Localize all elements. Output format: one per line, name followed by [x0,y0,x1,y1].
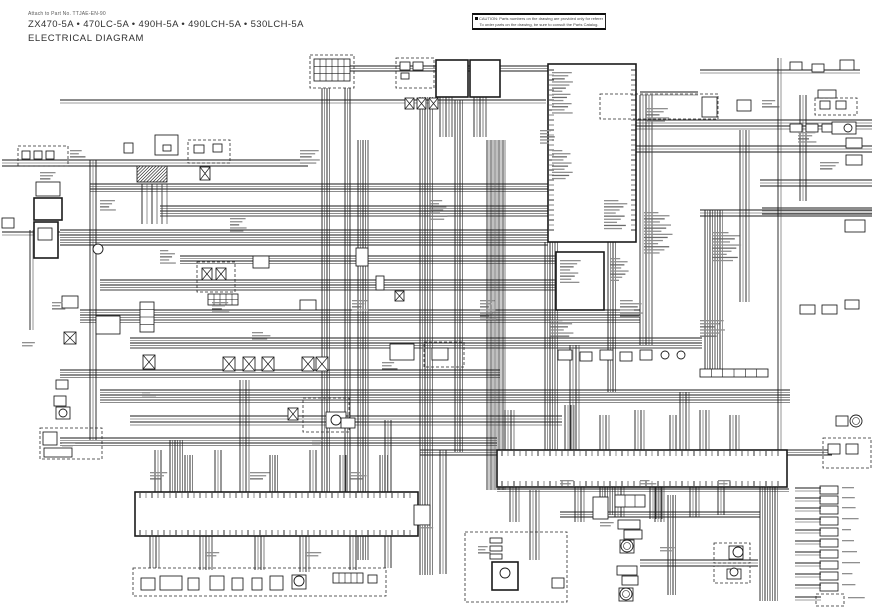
micro-label [478,546,488,547]
connector-grid [333,573,363,583]
micro-label [552,106,568,107]
micro-label [480,319,496,320]
micro-label [552,169,565,170]
micro-label [352,300,367,301]
micro-label [350,478,364,479]
micro-label [205,552,219,553]
micro-label [250,472,269,473]
micro-label [610,264,624,265]
controller-block [135,492,418,536]
micro-label [382,362,394,363]
component-block [820,583,838,591]
micro-label [552,84,569,85]
micro-label [160,253,175,254]
micro-label [620,312,643,313]
component-block [820,101,830,109]
component-block [836,416,848,426]
micro-label [610,270,629,271]
component-blocks [2,55,871,606]
component-block [790,124,802,132]
component-block [2,218,14,228]
micro-label [550,326,568,327]
micro-label [712,235,740,236]
micro-label [712,244,741,245]
micro-label [660,547,675,548]
component-block [36,182,60,196]
component-block [38,228,52,240]
micro-label [22,345,33,346]
micro-label [552,153,570,154]
component-block [846,138,862,148]
micro-label [550,323,572,324]
micro-label [552,75,568,76]
micro-label [712,257,738,258]
component-block [300,300,316,310]
component-block [490,538,502,543]
micro-label [660,550,672,551]
controller-block [470,60,500,97]
electrical-diagram-canvas [0,0,874,615]
connector-circle [661,351,669,359]
micro-label [560,263,577,264]
micro-label [100,206,109,207]
micro-label [620,300,633,301]
component-block [401,73,409,79]
micro-label [644,237,668,238]
micro-label [205,555,216,556]
component-block [252,578,262,590]
micro-label [552,81,573,82]
micro-label [644,215,670,216]
micro-label [382,368,398,369]
micro-label [762,106,779,107]
micro-label [212,311,229,312]
component-block [822,305,837,314]
connector-circle [59,409,67,417]
micro-label [644,246,669,247]
micro-label [604,219,621,220]
micro-label [430,206,446,207]
micro-label [798,141,816,142]
micro-label [604,200,618,201]
micro-label [540,142,549,143]
micro-label [644,231,661,232]
micro-label [550,332,573,333]
micro-label [560,272,578,273]
component-block [820,561,838,569]
micro-label [610,274,625,275]
micro-label [252,338,267,339]
micro-label [100,200,115,201]
component-block [163,145,171,151]
micro-label [620,303,642,304]
micro-label [540,133,548,134]
micro-label [22,342,35,343]
micro-label [552,150,562,151]
micro-label [820,162,839,163]
micro-label [560,279,571,280]
component-block [413,62,423,70]
micro-label [212,305,225,306]
micro-label [610,258,620,259]
micro-label [848,597,865,598]
micro-label [540,130,551,131]
micro-label [62,442,75,443]
component-block [845,220,865,232]
micro-label [552,97,567,98]
micro-label [430,216,447,217]
component-block [490,554,502,559]
component-block [580,352,592,361]
micro-label [430,203,439,204]
micro-label [52,308,65,309]
micro-label [552,72,572,73]
micro-label [150,472,167,473]
component-block [124,143,133,153]
component-block [624,530,642,539]
micro-label [552,103,572,104]
component-block [820,517,838,525]
micro-label [820,168,832,169]
micro-label [700,332,721,333]
micro-label [160,250,168,251]
component-block [846,155,862,165]
micro-label [604,225,626,226]
component-block [253,256,269,268]
micro-label [798,138,809,139]
micro-label [762,103,772,104]
micro-label [644,249,664,250]
component-block [593,497,608,519]
micro-label [52,305,60,306]
micro-label [644,221,660,222]
component-block [640,350,652,360]
component-block [737,100,751,111]
micro-label [604,209,620,210]
micro-label [700,326,715,327]
micro-label [798,132,815,133]
component-block [806,124,818,132]
component-block [232,578,243,590]
micro-label [480,312,492,313]
controller-block [34,198,62,220]
micro-label [300,150,319,151]
connector-circle [850,415,862,427]
micro-label [142,395,156,396]
micro-label [160,262,176,263]
micro-label [842,487,854,488]
micro-label [382,365,392,366]
micro-label [718,480,730,481]
micro-label [560,276,575,277]
micro-label [142,392,150,393]
component-block [820,528,838,536]
micro-label [70,153,79,154]
micro-label [480,303,492,304]
component-block [840,60,854,70]
micro-label [552,94,570,95]
micro-label [620,309,634,310]
micro-label [712,248,736,249]
micro-label [646,117,669,118]
micro-label [305,555,318,556]
micro-label [62,445,73,446]
micro-label [600,522,614,523]
micro-label [712,238,735,239]
component-block [188,578,199,590]
micro-label [600,525,611,526]
micro-label [762,100,775,101]
micro-label [150,478,161,479]
micro-label [644,240,663,241]
micro-label [604,203,627,204]
micro-label [70,156,85,157]
micro-label [552,156,567,157]
micro-label [100,203,112,204]
component-block [622,576,638,585]
micro-label [604,212,616,213]
component-block [54,396,66,406]
micro-label [300,156,312,157]
micro-label [560,480,574,481]
connector-circle [621,540,633,552]
micro-label [646,111,664,112]
connector-circle [677,351,685,359]
micro-label [352,303,364,304]
component-block [96,316,120,334]
micro-label [644,234,673,235]
fuse-hatch-line [121,166,137,182]
connector-circle [500,568,510,578]
micro-label [552,162,572,163]
component-block [341,418,355,428]
micro-label [312,443,320,444]
micro-label [230,224,239,225]
micro-label [212,308,222,309]
micro-label [552,78,565,79]
component-block [56,380,68,389]
micro-label [40,172,56,173]
micro-label [252,335,270,336]
component-block [820,486,838,494]
component-block [141,578,155,590]
micro-label [620,306,638,307]
wire-bundles [2,58,872,601]
micro-label [552,112,573,113]
micro-label [350,472,360,473]
micro-label [646,120,665,121]
component-block [356,248,368,266]
micro-label [250,475,266,476]
micro-label [644,228,666,229]
micro-label [70,150,82,151]
component-block [552,578,564,588]
micro-label [604,228,622,229]
micro-label [842,573,852,574]
micro-label [305,552,321,553]
component-block [812,64,824,72]
micro-label [430,212,440,213]
micro-label [552,178,566,179]
micro-label [550,320,562,321]
micro-label [712,260,733,261]
micro-label [604,206,623,207]
micro-label [842,562,860,563]
component-block [558,350,572,360]
micro-label [842,507,856,508]
micro-label [646,114,660,115]
micro-label [552,175,569,176]
micro-label [820,165,836,166]
micro-label [250,478,263,479]
micro-label [150,475,164,476]
micro-label [700,329,725,330]
micro-label [552,100,563,101]
micro-label [552,166,568,167]
micro-label [712,241,730,242]
micro-label [230,218,246,219]
connector-grid [615,495,645,507]
component-block [213,144,222,152]
micro-label [312,440,322,441]
component-block [820,496,838,504]
micro-label [52,302,62,303]
component-block [22,151,30,159]
micro-label [640,483,656,484]
micro-label [300,159,320,160]
micro-label [610,277,622,278]
micro-label [430,209,443,210]
micro-label [718,483,728,484]
micro-label [352,309,368,310]
micro-label [480,316,490,317]
micro-label [300,153,315,154]
micro-label [644,243,658,244]
micro-label [842,540,854,541]
micro-label [700,336,717,337]
micro-label [230,230,243,231]
connector-circle [294,576,304,586]
component-block [828,444,840,454]
component-block [800,305,815,314]
component-block [414,505,430,525]
micro-label [842,518,859,519]
component-block [376,276,384,290]
micro-label [610,280,619,281]
component-block [790,62,802,70]
micro-label [160,259,169,260]
micro-label [550,336,569,337]
micro-label [552,159,563,160]
micro-label [700,323,720,324]
controller-block [436,60,468,97]
micro-label [478,552,491,553]
micro-label [842,529,851,530]
micro-label [230,221,242,222]
micro-label [552,109,565,110]
component-block [432,348,448,360]
micro-label [560,269,570,270]
component-block [34,151,42,159]
component-block [845,300,859,309]
micro-label [480,300,494,301]
component-block [618,520,640,529]
component-block [390,344,414,360]
component-block [194,145,204,153]
component-block [820,539,838,547]
micro-label [160,256,172,257]
micro-label [40,178,50,179]
connector-circle [844,124,852,132]
micro-label [644,252,660,253]
micro-label [712,232,729,233]
micro-label [644,218,665,219]
component-block [43,432,57,445]
micro-label [610,261,628,262]
micro-label [712,251,732,252]
micro-label [230,227,247,228]
connector-circle [331,415,341,425]
connector-circle [620,588,632,600]
component-block [160,576,182,590]
component-block [620,352,632,361]
component-block [46,151,54,159]
micro-label [604,216,625,217]
controller-block [497,450,787,487]
component-block [210,576,224,590]
micro-label [480,309,495,310]
micro-label [610,267,621,268]
micro-label [842,497,855,498]
connector-circle [730,568,738,576]
micro-label [480,306,489,307]
micro-label [798,135,812,136]
micro-label [712,254,727,255]
micro-label [352,306,362,307]
component-block [702,97,717,117]
micro-label [540,136,555,137]
connector-circle [733,547,743,557]
micro-label [420,527,433,528]
micro-label [540,139,552,140]
micro-label [430,219,444,220]
component-block [820,572,838,580]
micro-label [350,475,367,476]
micro-label [252,332,263,333]
micro-label [560,483,571,484]
micro-label [640,480,650,481]
micro-label [478,549,485,550]
micro-label [646,108,668,109]
micro-label [552,91,562,92]
micro-label [560,260,581,261]
micro-label [550,329,564,330]
micro-label [560,266,574,267]
component-block [820,506,838,514]
micro-label [552,172,573,173]
micro-label [604,222,617,223]
micro-label [560,282,579,283]
micro-label [644,224,671,225]
connector-circle [93,244,103,254]
micro-label [430,200,442,201]
component-block [62,296,78,308]
component-block [846,444,858,454]
component-block [617,566,637,575]
component-block [818,90,836,98]
component-block [400,62,410,70]
component-block [44,448,72,457]
